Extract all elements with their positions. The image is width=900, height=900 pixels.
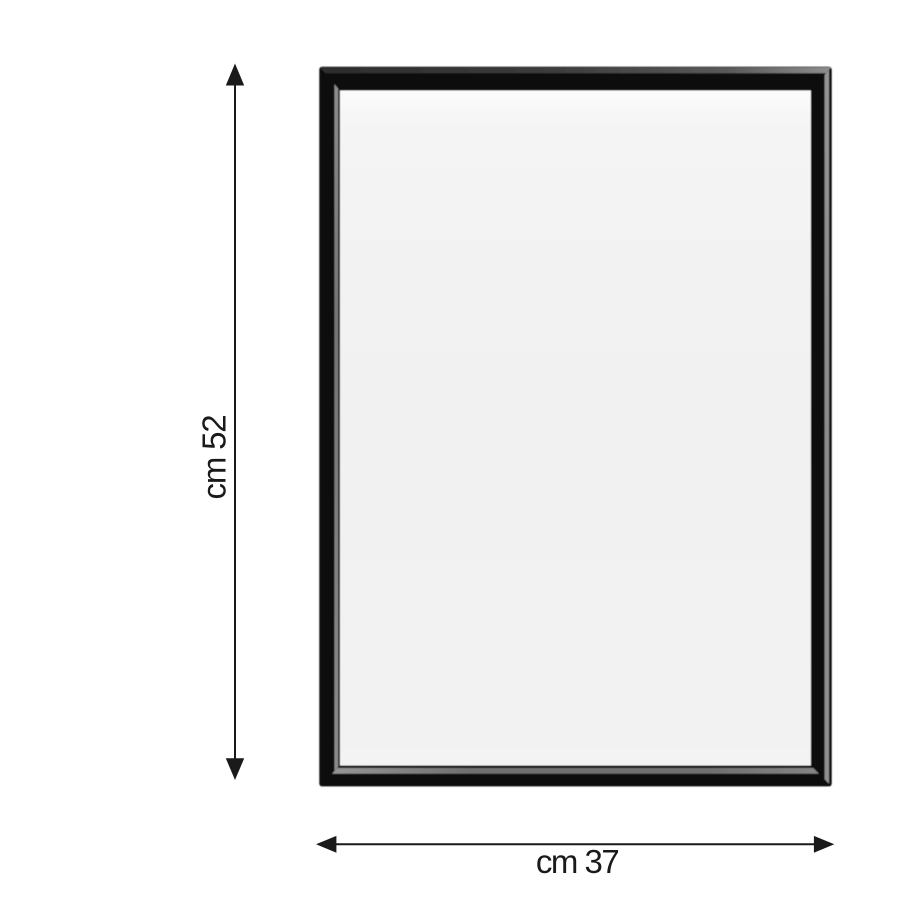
svg-text:cm 37: cm 37 [536,843,619,880]
svg-text:cm 52: cm 52 [196,416,233,500]
